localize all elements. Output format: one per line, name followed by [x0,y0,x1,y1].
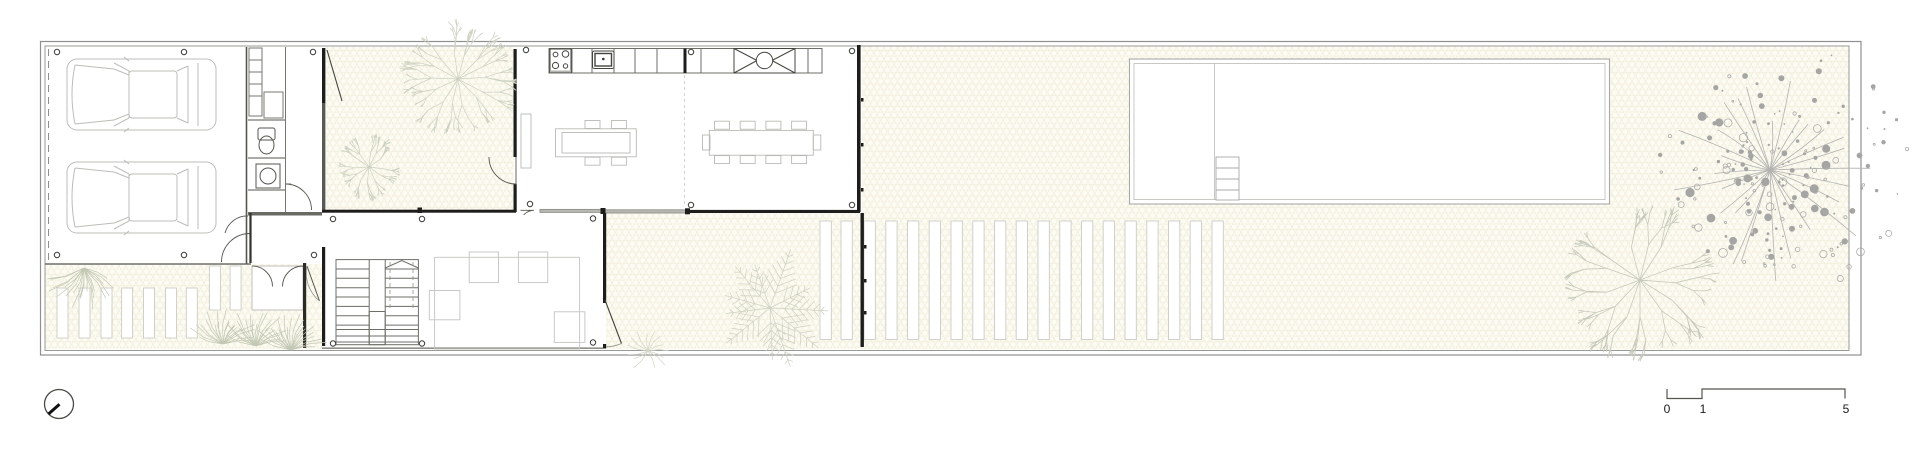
svg-text:1: 1 [1700,402,1707,416]
svg-text:5: 5 [1843,402,1850,416]
svg-text:0: 0 [1664,402,1671,416]
